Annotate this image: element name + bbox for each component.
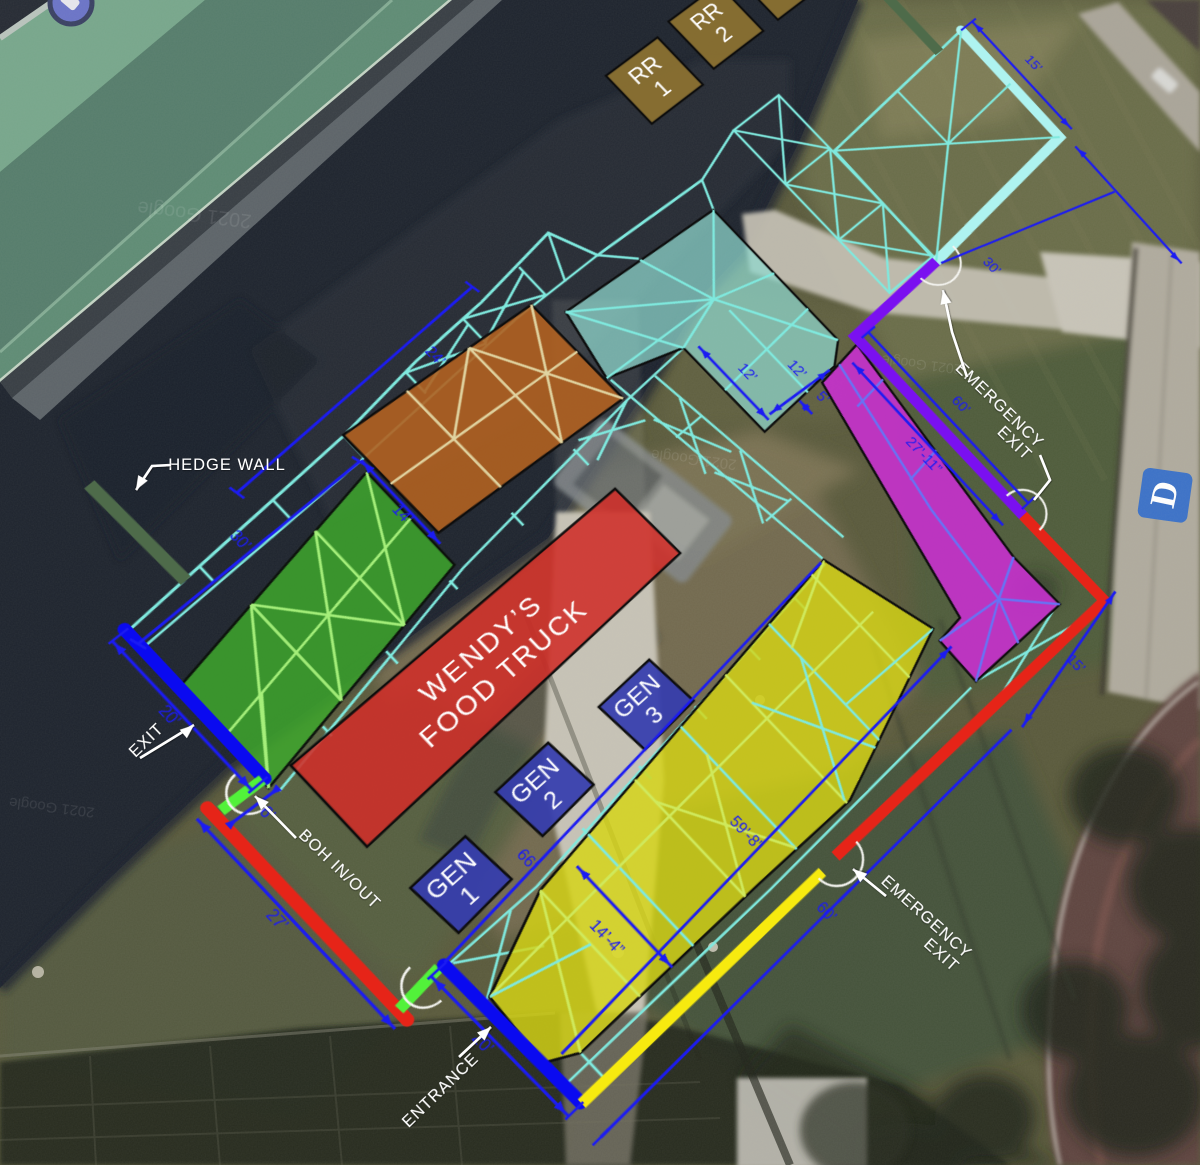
svg-text:ENTRANCE: ENTRANCE (399, 1050, 483, 1132)
svg-text:BOH IN/OUT: BOH IN/OUT (295, 826, 384, 913)
svg-text:HEDGE WALL: HEDGE WALL (168, 456, 286, 474)
